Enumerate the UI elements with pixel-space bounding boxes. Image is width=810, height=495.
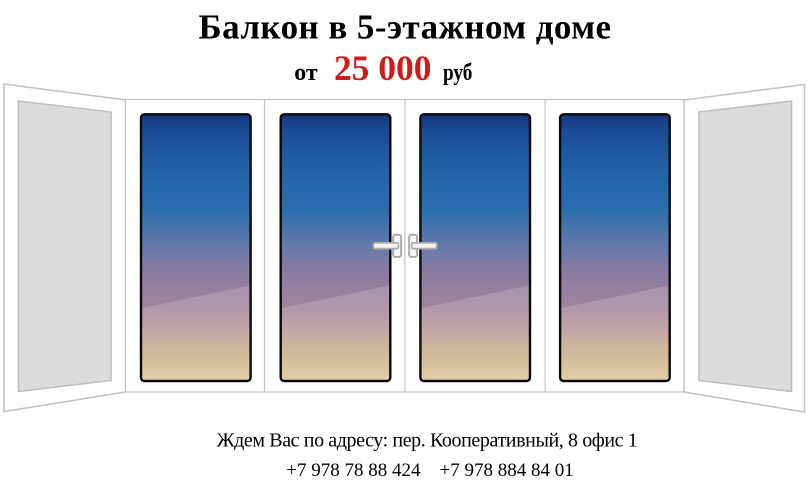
svg-text:руб: руб <box>443 60 473 86</box>
svg-text:от: от <box>294 60 318 86</box>
svg-text:Ждем Вас по адресу: пер. Коопе: Ждем Вас по адресу: пер. Кооперативный, … <box>217 430 638 452</box>
svg-text:25 000: 25 000 <box>334 48 432 88</box>
svg-text:+7 978 78 88 424 +7 978 884: +7 978 78 88 424 +7 978 884 84 01 <box>286 460 573 481</box>
svg-text:Балкон в 5-этажном доме: Балкон в 5-этажном доме <box>199 8 612 47</box>
